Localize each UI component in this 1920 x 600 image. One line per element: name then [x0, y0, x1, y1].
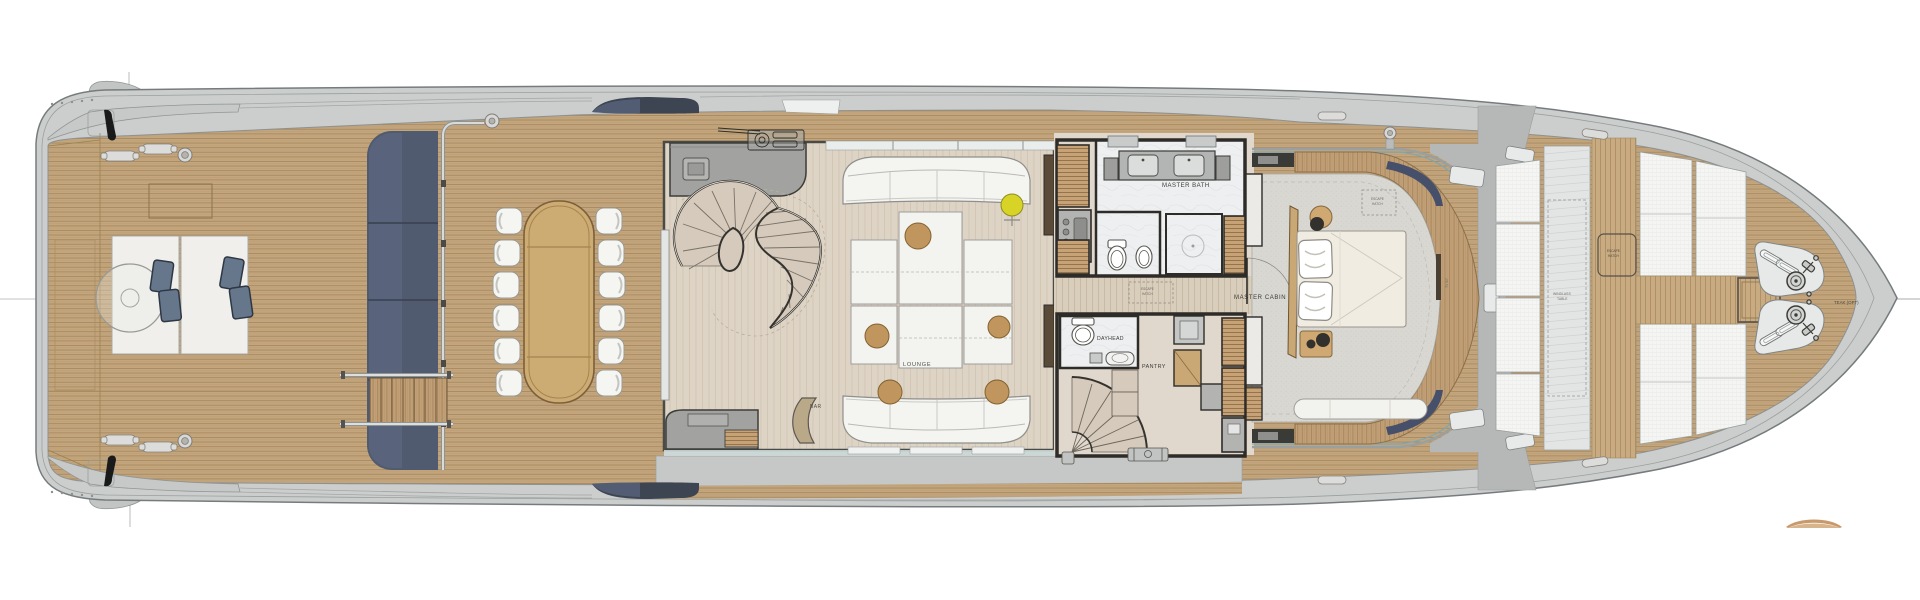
- svg-text:MASTER CABIN: MASTER CABIN: [1234, 295, 1286, 301]
- svg-text:LOUNGE: LOUNGE: [903, 362, 931, 368]
- svg-text:PANTRY: PANTRY: [1142, 364, 1166, 370]
- svg-text:MASTER BATH: MASTER BATH: [1162, 183, 1210, 189]
- svg-text:BAR: BAR: [810, 404, 821, 410]
- svg-text:TABLE: TABLE: [1557, 297, 1568, 301]
- svg-text:ESCAPE: ESCAPE: [1371, 197, 1384, 201]
- svg-text:DAYHEAD: DAYHEAD: [1097, 336, 1124, 342]
- svg-text:HATCH: HATCH: [1608, 254, 1619, 258]
- svg-text:WINDLASS: WINDLASS: [1553, 292, 1571, 296]
- svg-text:TEAK (OPT): TEAK (OPT): [1834, 300, 1859, 305]
- svg-text:ESCAPE: ESCAPE: [1141, 287, 1154, 291]
- svg-text:HATCH: HATCH: [1142, 292, 1153, 296]
- svg-text:HATCH: HATCH: [1372, 202, 1383, 206]
- svg-text:TV 50”: TV 50”: [1445, 278, 1449, 288]
- svg-text:ESCAPE: ESCAPE: [1607, 249, 1620, 253]
